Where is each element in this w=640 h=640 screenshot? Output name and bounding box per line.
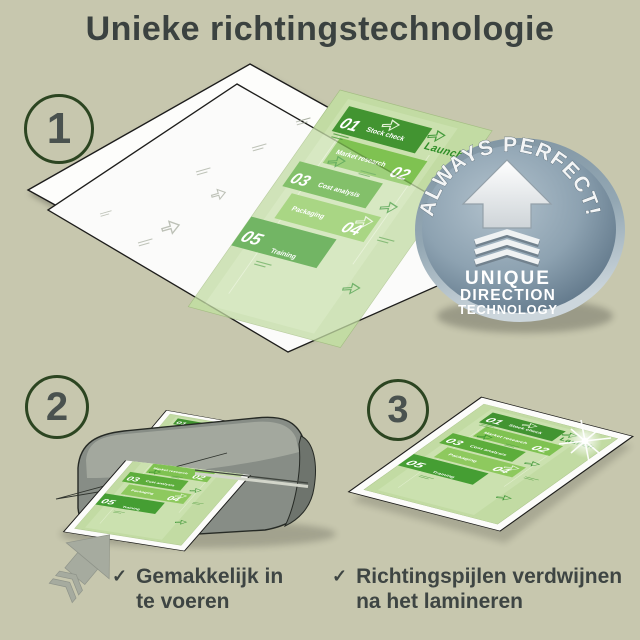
badge-line-technology: TECHNOLOGY xyxy=(458,302,558,317)
checklist-line: Gemakkelijk in xyxy=(136,564,283,589)
checklist-item-easy-feed: ✓ Gemakkelijk in te voeren xyxy=(112,564,283,614)
check-icon: ✓ xyxy=(332,564,347,587)
badge-line-unique: UNIQUE xyxy=(465,268,551,289)
check-icon: ✓ xyxy=(112,564,127,587)
step-2-marker: 2 xyxy=(25,375,89,439)
checklist-line: te voeren xyxy=(136,589,283,614)
step-3-marker: 3 xyxy=(367,379,429,441)
laminator-infographic: Launch 01 Stock check Market research 02… xyxy=(0,0,640,640)
step-1-number: 1 xyxy=(47,104,71,154)
step-3-number: 3 xyxy=(387,389,408,432)
checklist-text: Richtingspijlen verdwijnen na het lamine… xyxy=(356,564,622,614)
checklist-line: na het lamineren xyxy=(356,589,622,614)
checklist-item-arrows-disappear: ✓ Richtingspijlen verdwijnen na het lami… xyxy=(332,564,622,614)
checklist-line: Richtingspijlen verdwijnen xyxy=(356,564,622,589)
illustration-canvas: Launch 01 Stock check Market research 02… xyxy=(0,0,640,640)
page-title: Unieke richtingstechnologie xyxy=(0,10,640,49)
step-2-number: 2 xyxy=(46,385,68,430)
checklist-text: Gemakkelijk in te voeren xyxy=(136,564,283,614)
step-1-marker: 1 xyxy=(24,94,94,164)
